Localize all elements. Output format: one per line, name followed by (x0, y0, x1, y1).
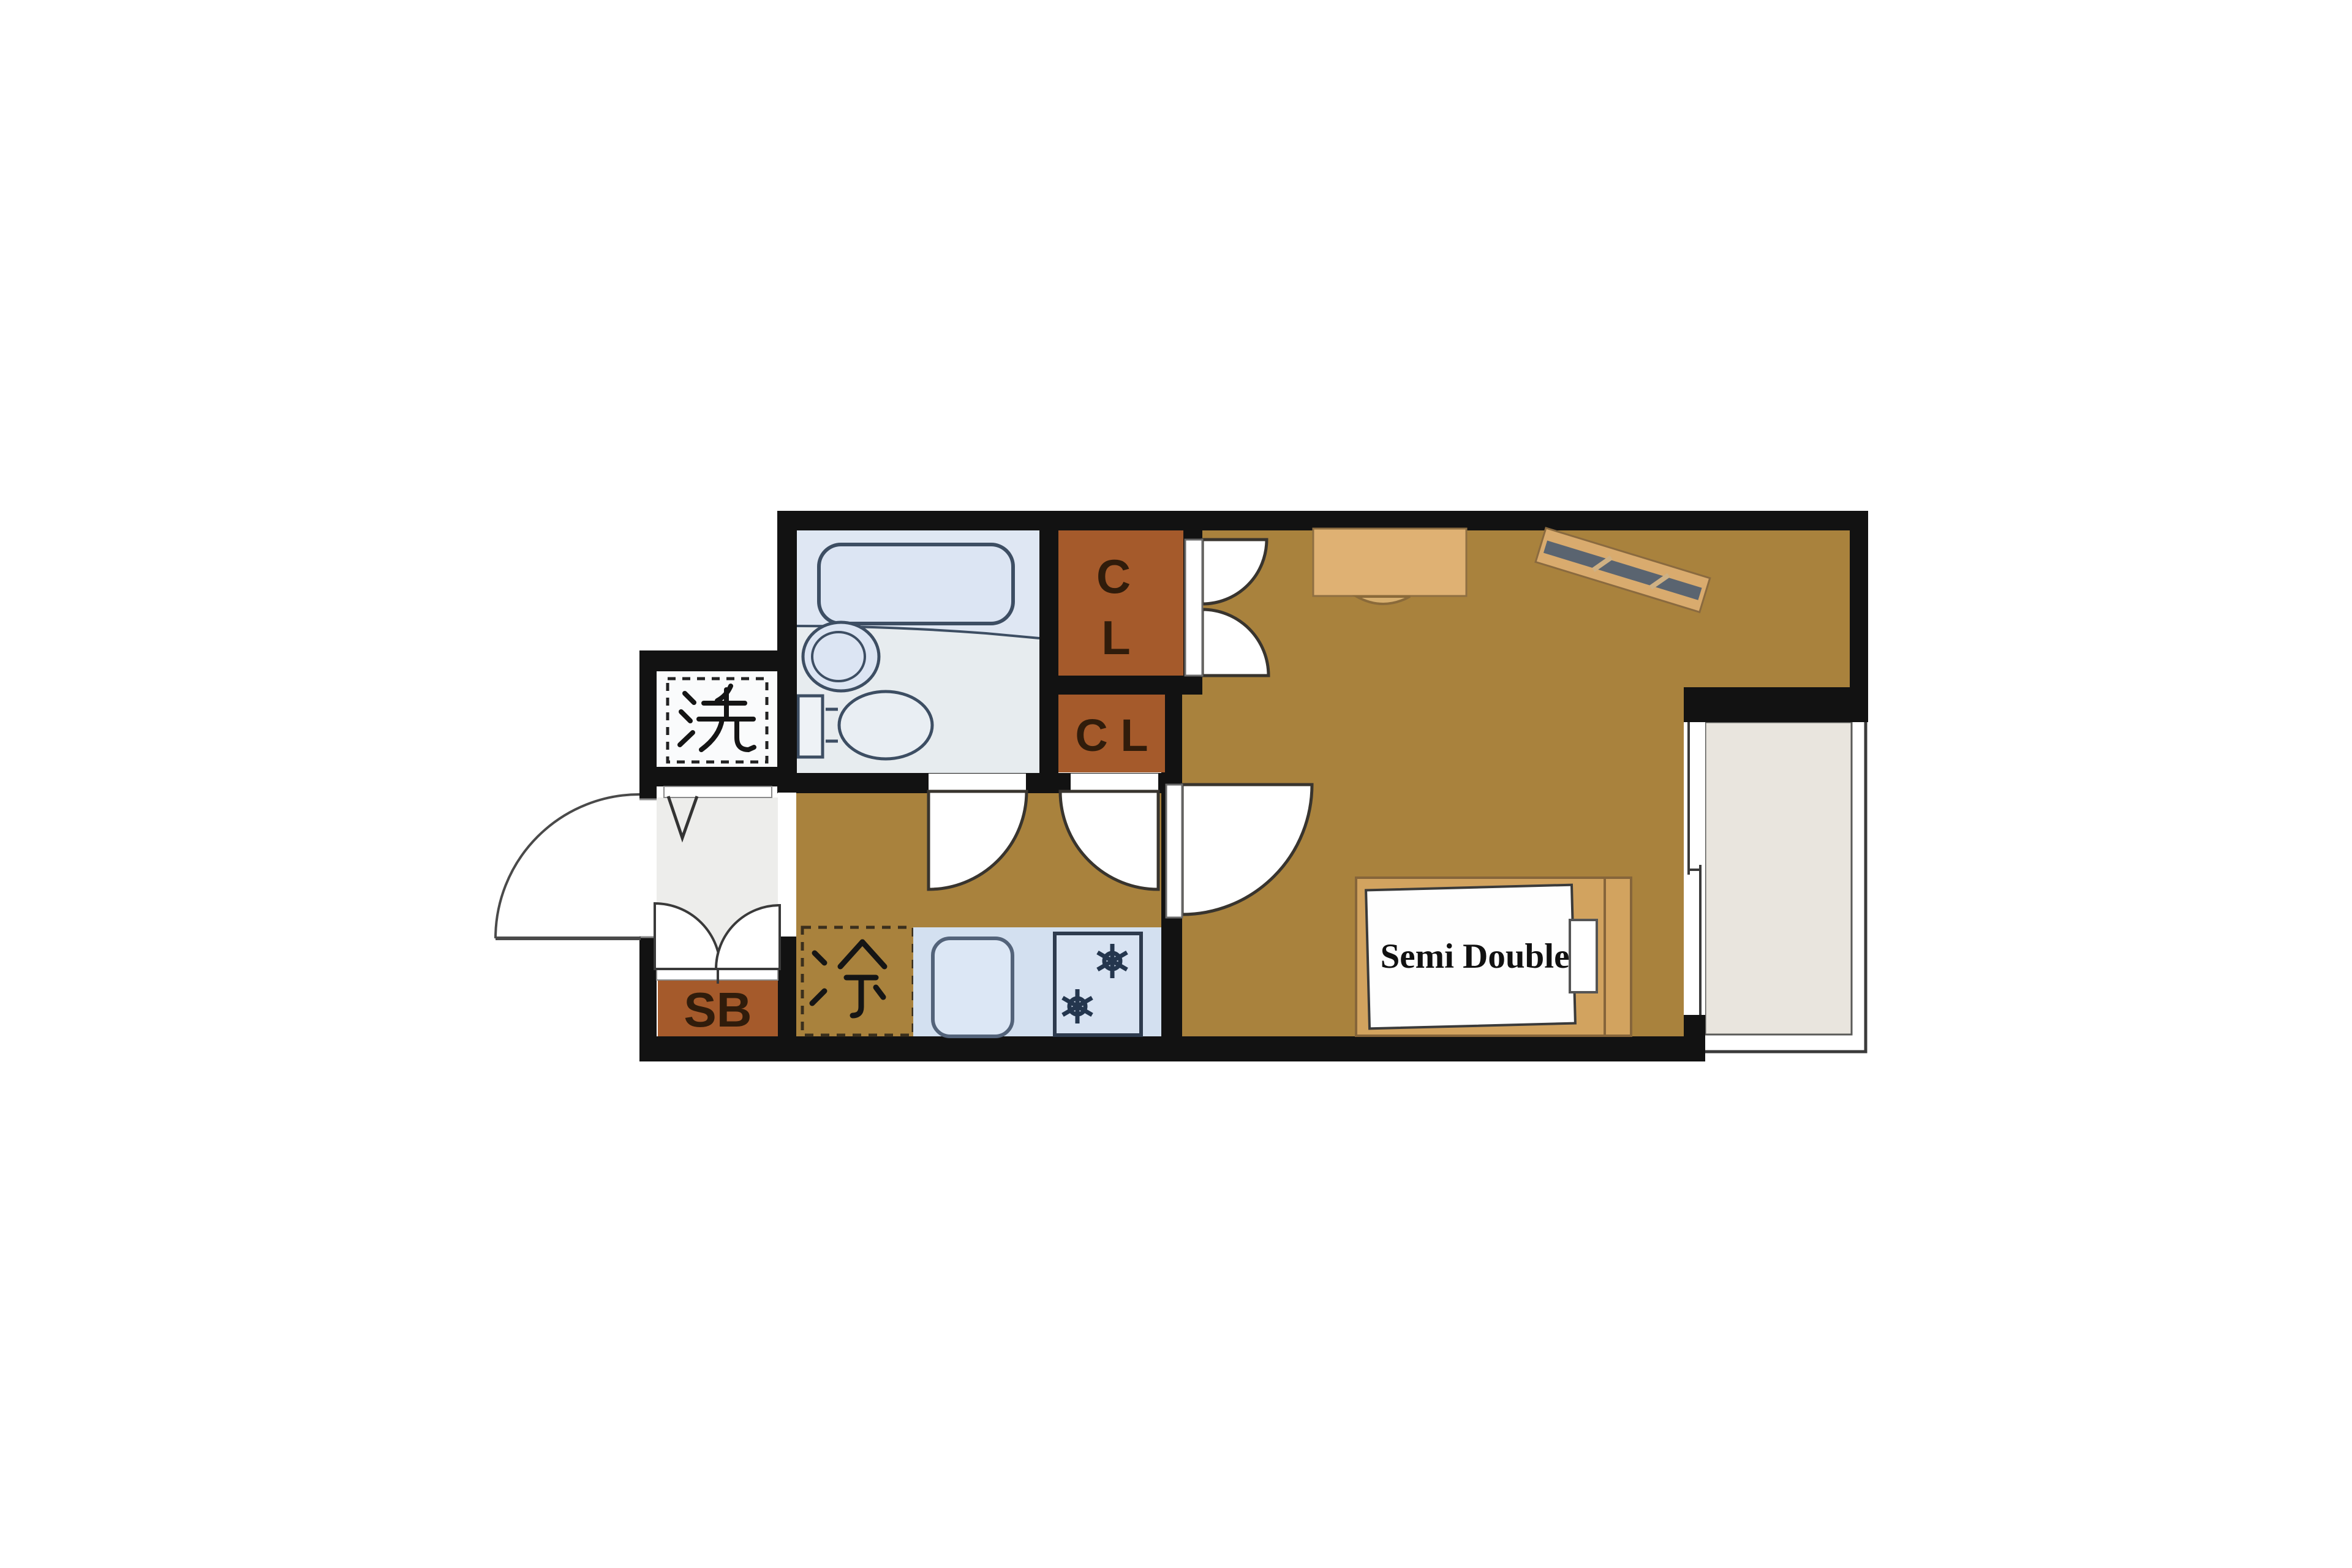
svg-text:Semi Double: Semi Double (1381, 937, 1570, 976)
svg-text:SB: SB (684, 982, 752, 1037)
svg-text:C: C (1096, 549, 1131, 603)
svg-text:L: L (1101, 611, 1131, 665)
svg-text:C L: C L (1075, 710, 1148, 761)
